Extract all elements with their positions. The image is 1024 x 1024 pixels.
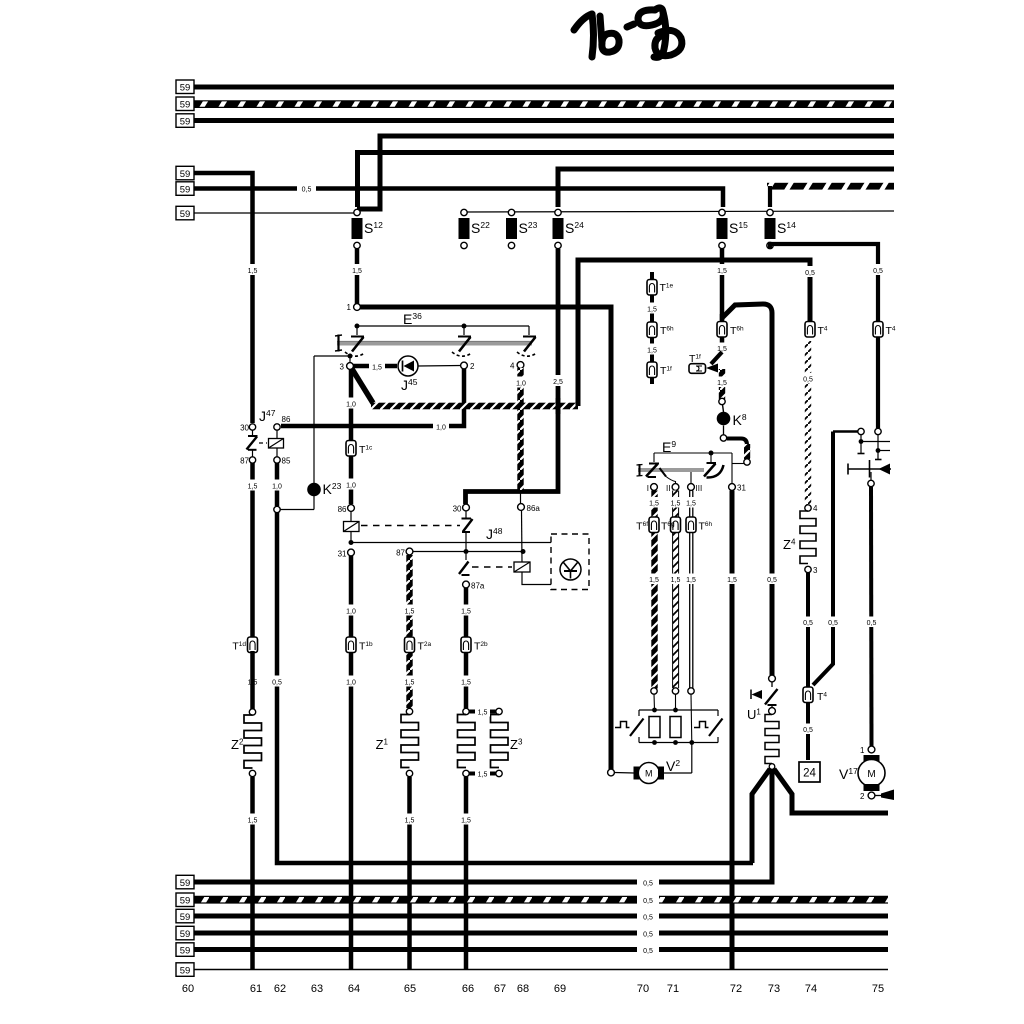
svg-text:1,5: 1,5 xyxy=(352,268,362,275)
svg-text:60: 60 xyxy=(182,983,194,995)
svg-text:0,5: 0,5 xyxy=(643,898,653,905)
svg-text:1: 1 xyxy=(347,303,352,312)
svg-text:59: 59 xyxy=(180,878,191,889)
svg-text:69: 69 xyxy=(554,983,566,995)
svg-text:3: 3 xyxy=(813,566,818,575)
svg-text:0,5: 0,5 xyxy=(803,620,813,627)
svg-text:59: 59 xyxy=(180,209,191,220)
svg-text:III: III xyxy=(696,484,703,493)
svg-text:1,5: 1,5 xyxy=(686,501,696,508)
svg-text:1,0: 1,0 xyxy=(346,609,356,616)
svg-text:1,5: 1,5 xyxy=(461,609,471,616)
svg-text:59: 59 xyxy=(180,169,191,180)
svg-text:72: 72 xyxy=(730,983,742,995)
svg-text:59: 59 xyxy=(180,929,191,940)
svg-text:1,5: 1,5 xyxy=(727,577,737,584)
svg-text:2: 2 xyxy=(860,792,865,801)
svg-text:0,5: 0,5 xyxy=(643,915,653,922)
svg-text:4: 4 xyxy=(813,504,818,513)
svg-text:1,0: 1,0 xyxy=(346,483,356,490)
svg-text:87: 87 xyxy=(396,549,405,558)
svg-text:0,5: 0,5 xyxy=(643,948,653,955)
svg-text:1,0: 1,0 xyxy=(346,680,356,687)
svg-text:1,0: 1,0 xyxy=(436,425,446,432)
svg-text:86: 86 xyxy=(338,505,347,514)
svg-text:1,5: 1,5 xyxy=(717,268,727,275)
svg-text:86: 86 xyxy=(282,415,291,424)
svg-text:59: 59 xyxy=(180,184,191,195)
svg-text:70: 70 xyxy=(637,983,649,995)
svg-text:1: 1 xyxy=(860,746,865,755)
svg-text:74: 74 xyxy=(805,983,817,995)
svg-text:1,5: 1,5 xyxy=(405,680,415,687)
svg-text:1,5: 1,5 xyxy=(461,680,471,687)
svg-text:1,5: 1,5 xyxy=(248,484,258,491)
svg-text:2,5: 2,5 xyxy=(553,379,563,386)
svg-text:1,5: 1,5 xyxy=(372,365,382,372)
svg-text:71: 71 xyxy=(667,983,679,995)
svg-text:59: 59 xyxy=(180,896,191,907)
svg-text:73: 73 xyxy=(768,983,780,995)
svg-text:61: 61 xyxy=(250,983,262,995)
svg-text:0,5: 0,5 xyxy=(803,377,813,384)
svg-text:1,5: 1,5 xyxy=(686,577,696,584)
svg-text:M: M xyxy=(645,769,653,779)
svg-text:86a: 86a xyxy=(527,504,541,513)
svg-text:1,5: 1,5 xyxy=(717,346,727,353)
svg-text:1,0: 1,0 xyxy=(346,402,356,409)
svg-text:1,5: 1,5 xyxy=(647,307,657,314)
svg-text:1,5: 1,5 xyxy=(405,818,415,825)
svg-text:2: 2 xyxy=(470,362,475,371)
svg-text:30: 30 xyxy=(453,505,462,514)
svg-text:67: 67 xyxy=(494,983,506,995)
svg-text:1,5: 1,5 xyxy=(649,501,659,508)
svg-text:59: 59 xyxy=(180,116,191,127)
svg-text:59: 59 xyxy=(180,945,191,956)
svg-text:1,5: 1,5 xyxy=(478,710,488,717)
svg-text:0,5: 0,5 xyxy=(767,577,777,584)
svg-text:63: 63 xyxy=(311,983,323,995)
svg-text:85: 85 xyxy=(282,457,291,466)
svg-text:1,0: 1,0 xyxy=(272,484,282,491)
svg-text:0,5: 0,5 xyxy=(643,932,653,939)
svg-text:0,5: 0,5 xyxy=(805,270,815,277)
svg-text:59: 59 xyxy=(180,912,191,923)
svg-text:65: 65 xyxy=(404,983,416,995)
svg-text:M: M xyxy=(867,769,875,780)
svg-text:75: 75 xyxy=(872,983,884,995)
svg-text:59: 59 xyxy=(180,100,191,111)
svg-text:I: I xyxy=(647,484,649,493)
svg-text:0,5: 0,5 xyxy=(873,268,883,275)
svg-text:0,5: 0,5 xyxy=(643,881,653,888)
svg-text:3: 3 xyxy=(340,363,345,372)
svg-text:1,5: 1,5 xyxy=(248,818,258,825)
svg-text:64: 64 xyxy=(348,983,360,995)
svg-text:1,5: 1,5 xyxy=(478,772,488,779)
svg-text:0,5: 0,5 xyxy=(803,727,813,734)
svg-text:87: 87 xyxy=(240,457,249,466)
svg-text:59: 59 xyxy=(180,965,191,976)
svg-text:1,5: 1,5 xyxy=(405,609,415,616)
svg-text:31: 31 xyxy=(338,550,347,559)
svg-text:66: 66 xyxy=(462,983,474,995)
svg-text:II: II xyxy=(666,484,670,493)
svg-text:1,5: 1,5 xyxy=(461,818,471,825)
svg-text:31: 31 xyxy=(737,484,746,493)
svg-text:0,5: 0,5 xyxy=(867,620,877,627)
svg-text:59: 59 xyxy=(180,83,191,94)
svg-text:30: 30 xyxy=(240,424,249,433)
svg-text:62: 62 xyxy=(274,983,286,995)
svg-text:1,5: 1,5 xyxy=(647,348,657,355)
svg-text:1,5: 1,5 xyxy=(248,268,258,275)
svg-text:87a: 87a xyxy=(471,582,485,591)
svg-text:1,5: 1,5 xyxy=(671,501,681,508)
svg-text:4: 4 xyxy=(510,362,515,371)
svg-text:0,5: 0,5 xyxy=(272,680,282,687)
svg-text:1,5: 1,5 xyxy=(649,577,659,584)
svg-text:1,5: 1,5 xyxy=(671,577,681,584)
svg-text:1,0: 1,0 xyxy=(516,381,526,388)
svg-text:0,5: 0,5 xyxy=(828,620,838,627)
svg-text:0,5: 0,5 xyxy=(302,187,312,194)
svg-text:24: 24 xyxy=(803,768,816,780)
svg-text:1,5: 1,5 xyxy=(717,380,727,387)
svg-text:68: 68 xyxy=(517,983,529,995)
